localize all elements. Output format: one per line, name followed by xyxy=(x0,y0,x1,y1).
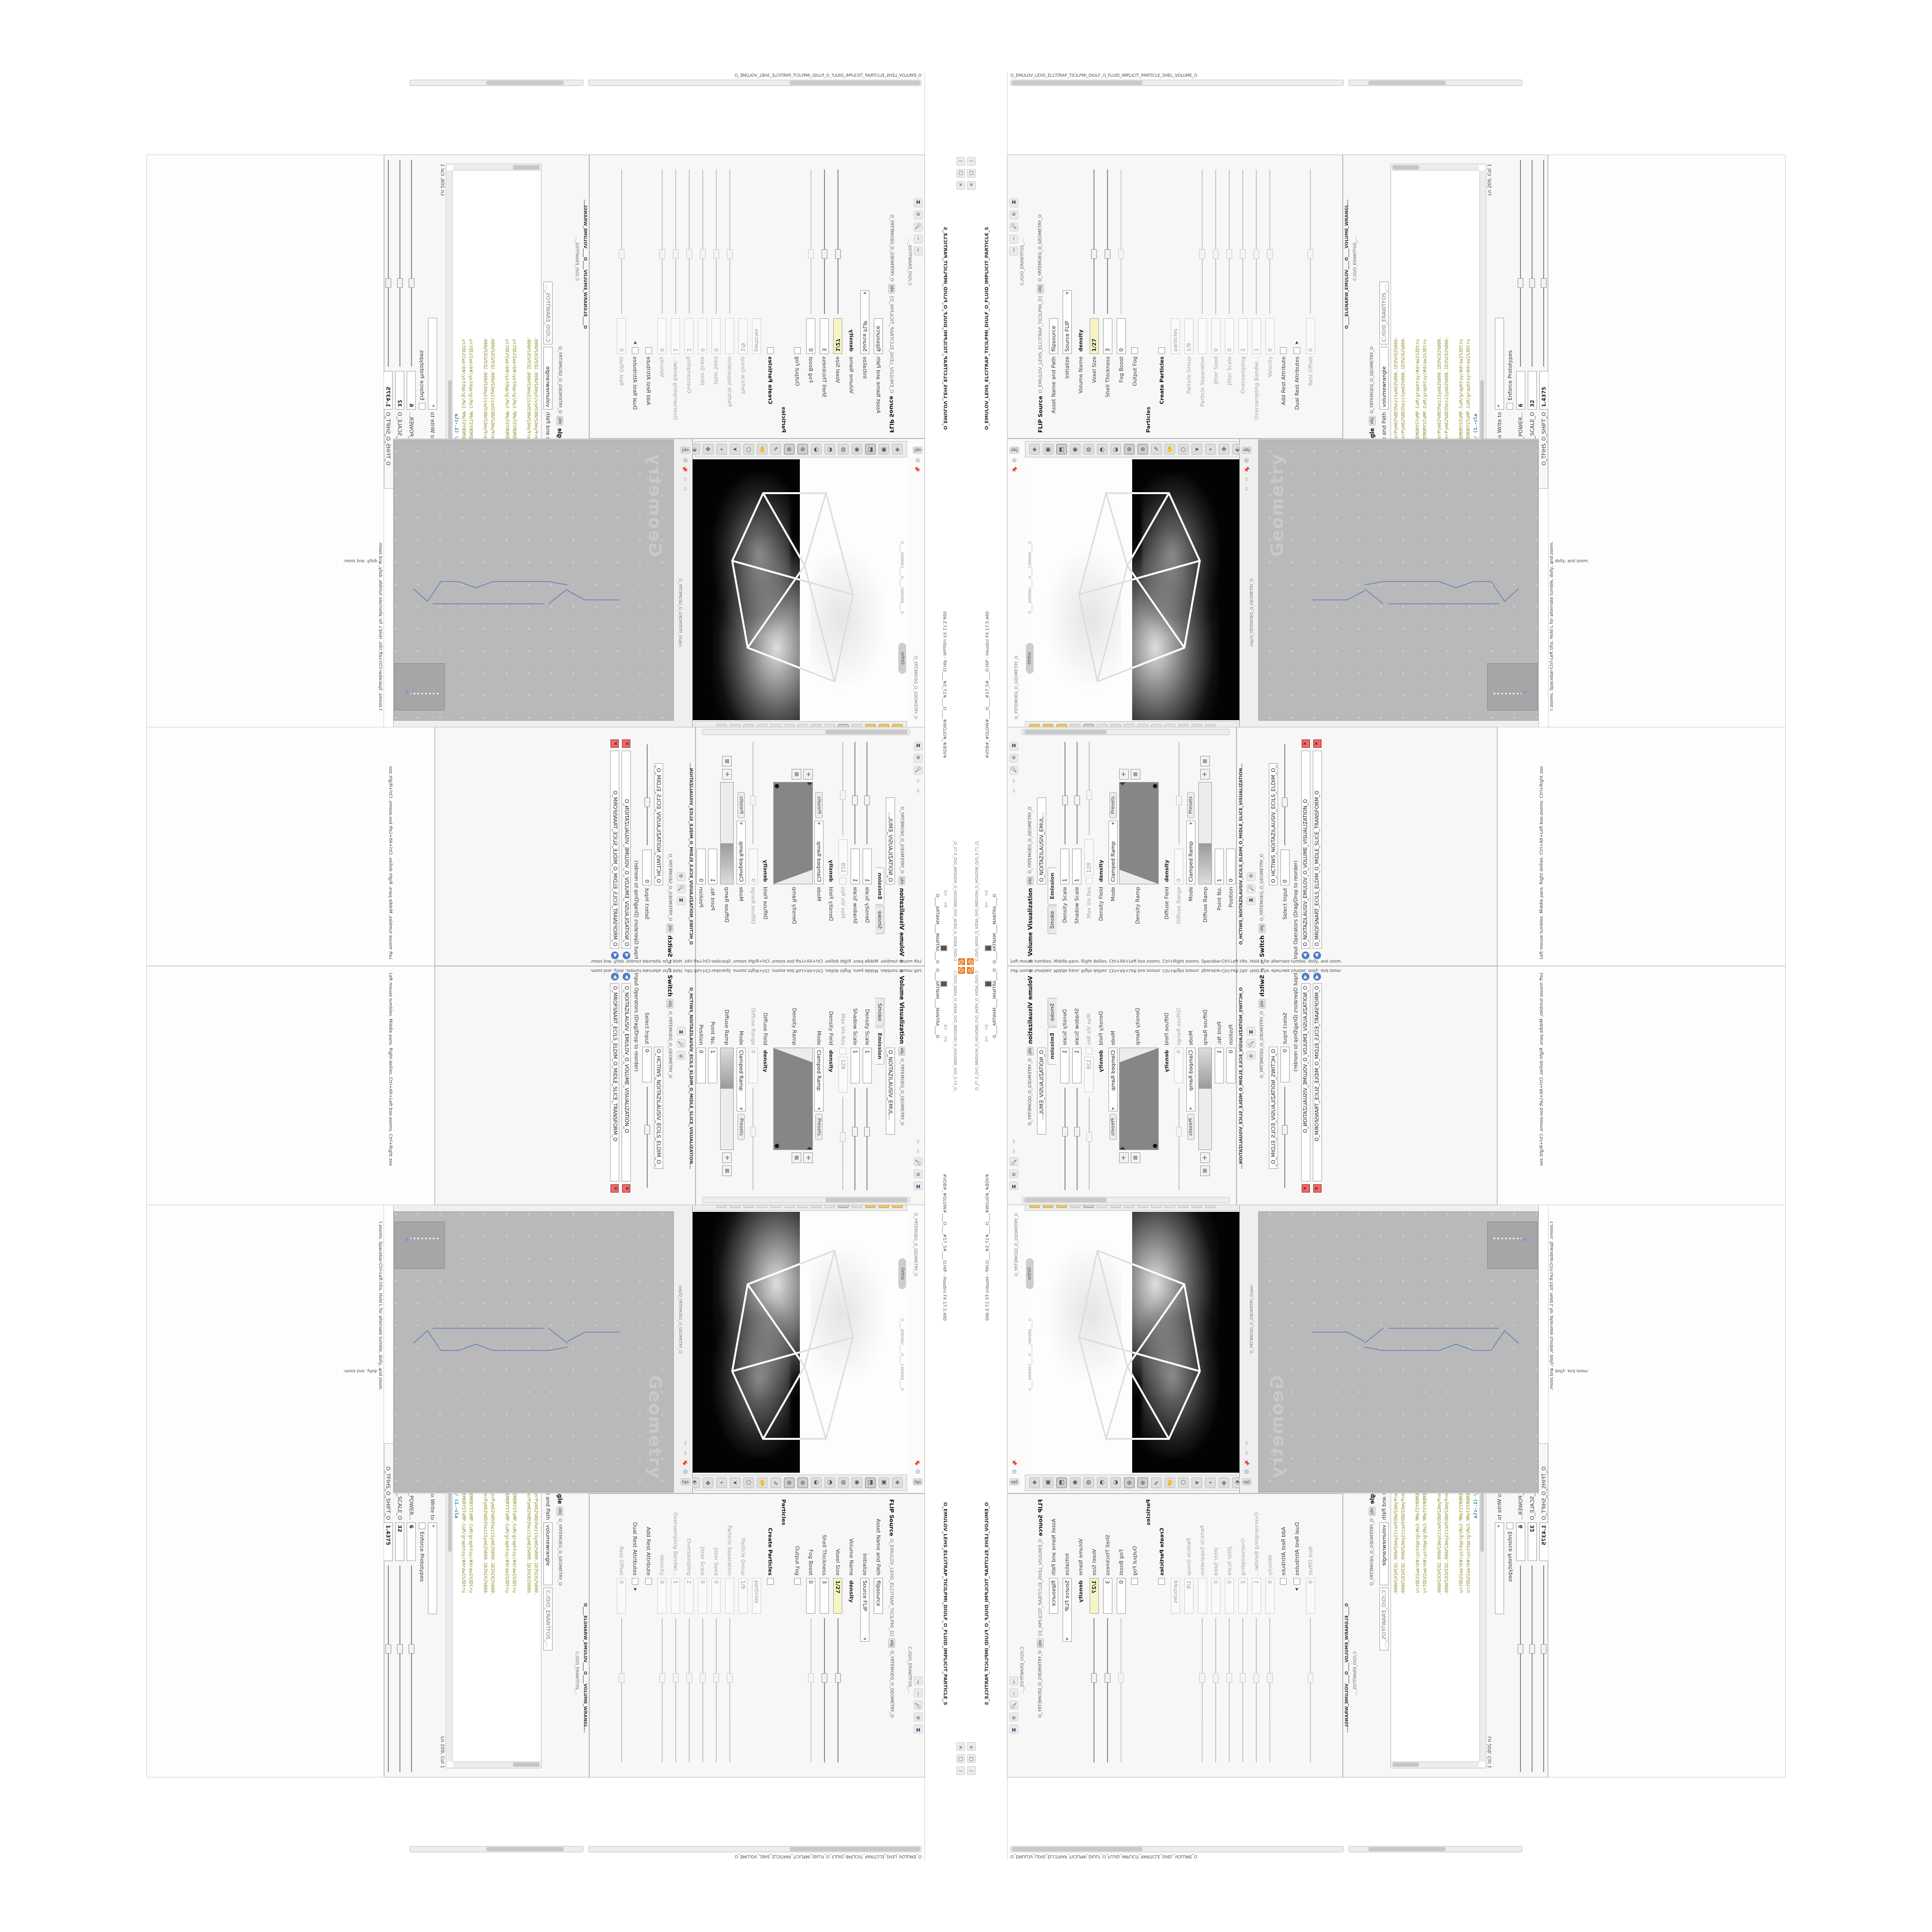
code-vscrollbar[interactable] xyxy=(453,1762,540,1767)
parameter-field[interactable]: 1 xyxy=(1252,1578,1261,1614)
parameter-row[interactable]: particles ➤ xyxy=(750,165,764,433)
parameter-slider[interactable] xyxy=(1065,1088,1065,1190)
nav-up-arrow-icon[interactable]: ⇧ xyxy=(1011,778,1016,784)
remove-operator-button[interactable]: ✕ xyxy=(611,739,619,748)
parameter-row[interactable]: O_ELACS_O_SCALE_O 32 xyxy=(394,1444,406,1777)
parameter-slider[interactable] xyxy=(1202,1618,1203,1762)
remove-operator-button[interactable]: ✕ xyxy=(1313,1184,1321,1193)
parameter-row[interactable]: Voxel Size 1/27 ➤ xyxy=(1087,1499,1101,1767)
viewport-tool-icon[interactable]: ✥ xyxy=(703,444,713,455)
checkbox[interactable] xyxy=(632,1578,639,1585)
parameter-row[interactable]: Jitter Scale 0 ➤ xyxy=(696,165,710,433)
obj-tab[interactable]: obj xyxy=(681,1478,690,1485)
code-hscrollbar[interactable] xyxy=(1479,170,1485,483)
input-operator-row[interactable]: ◀ O_NOITAZILAUSIV_EMULOV_O_VOLUME_VISUAL… xyxy=(1300,739,1311,959)
magnifier-icon[interactable]: 🔍 xyxy=(1009,223,1018,231)
obj-breadcrumb[interactable]: obj xyxy=(898,1047,905,1056)
wrangle-breadcrumb-path[interactable]: C:/O/O_ERAWTFOS_... xyxy=(574,170,579,281)
parameter-field[interactable]: 2 xyxy=(685,318,694,354)
density-ramp-editor[interactable] xyxy=(1119,782,1159,884)
flip-tab-title[interactable]: FLIP Source xyxy=(1037,1499,1044,1536)
operator-path[interactable]: O_NOITAZILAUSIV_EMULOV_O_VOLUME_VISUALIZ… xyxy=(1301,983,1310,1181)
reorder-icon[interactable]: ◀ xyxy=(1313,973,1321,980)
viewport-side-icons[interactable]: obj ◎ 📌 xyxy=(913,447,923,473)
checkbox[interactable] xyxy=(1131,347,1138,354)
checkbox[interactable] xyxy=(1158,1578,1165,1585)
obj-breadcrumb[interactable]: obj xyxy=(1027,1047,1034,1056)
parameter-slider[interactable] xyxy=(1532,1565,1533,1772)
parameter-slider[interactable] xyxy=(1179,1088,1179,1190)
viewport-tool-icon[interactable]: ⊗ xyxy=(784,444,795,455)
switch-side-icons[interactable]: ⚙ 🔍 H xyxy=(677,872,685,905)
geo-breadcrumb[interactable]: O_YRTEMOEG_O_GEOMETRY_O xyxy=(889,214,894,282)
parameter-field[interactable]: 1/27 xyxy=(834,318,843,354)
parameter-field[interactable]: Clamped Ramp xyxy=(1186,1048,1195,1111)
wrangle-breadcrumb-path[interactable]: C:/O/O_ERAWTFOS_... xyxy=(1353,1651,1358,1762)
magnifier-icon[interactable]: 🔍 xyxy=(914,223,923,231)
parameter-field[interactable]: Source FLIP xyxy=(1063,1578,1072,1642)
network-canvas[interactable]: Geometry an_CubeSphereO_EREHPS_EBUC_O_CU… xyxy=(1258,440,1538,721)
parameter-field[interactable]: 0 xyxy=(807,318,816,354)
volumes-field[interactable]: * xyxy=(1495,318,1504,410)
parameter-field[interactable]: Clamped Ramp xyxy=(814,1048,824,1111)
parameter-row[interactable]: Shell Thickness 3 ➤ xyxy=(818,1499,831,1767)
viewport-tool-icon[interactable]: ○ xyxy=(1178,1477,1189,1488)
flip-pane-icons[interactable]: H ⚙ 🔍 i ? xyxy=(1009,1676,1018,1733)
viewport-tool-icon[interactable]: ◑ xyxy=(1110,1477,1121,1488)
volviz-scrollbar[interactable] xyxy=(1022,1197,1230,1203)
parameter-slider[interactable] xyxy=(675,1618,676,1762)
nav-down-arrow-icon[interactable]: ⇩ xyxy=(683,486,688,492)
flip-pane-icons[interactable]: H ⚙ 🔍 i ? xyxy=(914,199,923,256)
asset-name-field[interactable]: volumewrangle xyxy=(544,347,553,410)
target-icon[interactable]: ◎ xyxy=(1244,1469,1249,1475)
parameter-field[interactable]: 0 xyxy=(1265,318,1275,354)
viewport-tool-icon[interactable]: ◧ xyxy=(865,444,876,455)
parameter-row[interactable]: Asset Name and Path flipsource ➤ xyxy=(872,165,885,433)
parameter-slider[interactable] xyxy=(1269,1618,1270,1762)
viewport-tool-icon[interactable]: ▣ xyxy=(1043,1477,1053,1488)
parameter-row[interactable]: Asset Name and Path flipsource ➤ xyxy=(1047,165,1060,433)
parameter-row[interactable]: O_TFIHS_O_SHIFT_O 1.4375 xyxy=(383,155,394,488)
parameter-field[interactable]: 0 xyxy=(658,1578,667,1614)
parameter-row[interactable]: Add Rest Attribute ➤ xyxy=(642,165,655,433)
parameter-field[interactable]: density xyxy=(1076,1578,1085,1614)
obj-breadcrumb[interactable]: obj xyxy=(556,416,563,426)
magnifier-icon[interactable]: 🔍 xyxy=(914,1157,923,1166)
volviz-side-icons[interactable]: H ⚙ 🔍 ⇧ ⇩ xyxy=(914,1138,923,1190)
viewport-render-area[interactable]: Ortho O____AREMAC____O____CAMERA____O xyxy=(693,459,907,720)
parameter-field[interactable]: 0 xyxy=(1306,318,1315,354)
parameter-field[interactable]: density xyxy=(826,1048,836,1083)
viewport-tool-icon[interactable]: ◐ xyxy=(1097,444,1108,455)
parameter-slider[interactable] xyxy=(1179,742,1179,844)
parameter-slider[interactable] xyxy=(689,1618,690,1762)
parameter-slider[interactable] xyxy=(1520,160,1521,367)
parameter-field[interactable]: 0 xyxy=(617,1578,626,1614)
parameter-slider[interactable] xyxy=(1269,170,1270,314)
camera-menu-label[interactable]: O____AREMAC____O____CAMERA____O xyxy=(1028,488,1033,614)
nav-down-arrow-icon[interactable]: ⇩ xyxy=(1244,1440,1249,1446)
vex-code-editor[interactable]: //// ◎ 0D3%steserPym62%0D3%eziSym62%000.… xyxy=(1391,164,1486,483)
parameter-row[interactable]: Volume Name density ➤ xyxy=(845,165,858,433)
parameter-row[interactable]: Density Scale 1 Presets xyxy=(1059,737,1071,963)
window-close-button[interactable]: ✕ xyxy=(967,181,976,190)
parameter-row[interactable]: Shell Thickness 3 ➤ xyxy=(1101,1499,1114,1767)
parameter-field[interactable] xyxy=(1198,1578,1207,1614)
parameter-row[interactable]: Oversampling Bandwi... 1 ➤ xyxy=(669,165,682,433)
flip-pane-tab-row[interactable]: FLIP Source O_EMULOV_LEHS_ELCITRAP_TICIL… xyxy=(1034,165,1047,433)
volviz-scrollbar[interactable] xyxy=(702,729,910,735)
parameter-field[interactable]: 1 xyxy=(671,318,681,354)
camera-menu-label[interactable]: O____AREMAC____O____CAMERA____O xyxy=(899,488,904,614)
parameter-slider[interactable] xyxy=(689,170,690,314)
parameter-row[interactable]: Point No. 1 xyxy=(707,969,719,1195)
checkbox[interactable] xyxy=(840,1048,847,1054)
viewport-tool-icon[interactable]: ▣ xyxy=(879,444,889,455)
remove-operator-button[interactable]: ✕ xyxy=(611,1184,619,1193)
parameter-row[interactable]: Point No. 1 xyxy=(1213,737,1225,963)
parameter-field[interactable]: 3 xyxy=(1103,318,1112,354)
switch-node-field[interactable]: O_HCTIWS_NOITAZILAUSIV_ECILS_ELDIM_O_ xyxy=(654,1047,664,1169)
operator-path[interactable]: O_MROFSNART_ECILS_ELDIM_O_MIDLE_SLICE_TR… xyxy=(611,751,620,949)
pin-icon[interactable]: 📌 xyxy=(914,467,921,473)
parameter-row[interactable]: Density Field density Presets xyxy=(825,737,837,963)
window-maximize-button[interactable]: □ xyxy=(956,169,965,178)
parameter-slider[interactable] xyxy=(1121,170,1122,314)
parameter-slider[interactable] xyxy=(855,742,856,844)
obj-breadcrumb[interactable]: obj xyxy=(1369,416,1376,426)
reorder-icon[interactable]: ◀ xyxy=(623,952,630,959)
parameter-slider[interactable] xyxy=(1077,742,1078,844)
geo-breadcrumb[interactable]: O_YRTEMOEG_O_GEOMETRY_O xyxy=(1260,1011,1264,1078)
parameter-row[interactable]: O_TFIHS_O_SHIFT_O 1.4375 xyxy=(383,1444,394,1777)
viewport-tool-icon[interactable]: ◐ xyxy=(1097,1477,1108,1488)
parameter-field[interactable]: density xyxy=(1076,318,1085,354)
parameter-slider[interactable] xyxy=(753,1088,754,1190)
parameter-row[interactable]: Initialize Source FLIP ➤ xyxy=(1060,165,1074,433)
parameter-slider[interactable] xyxy=(855,1088,856,1190)
ramp-add-button[interactable]: ✛ xyxy=(1200,1152,1210,1163)
parameter-slider[interactable] xyxy=(388,160,389,367)
parameter-row[interactable]: Fog Boost 0 ➤ xyxy=(1114,165,1128,433)
parameter-field[interactable]: 1 xyxy=(1072,1048,1081,1083)
gear-icon[interactable]: ⚙ xyxy=(1009,1169,1018,1178)
parameter-field[interactable]: 0 xyxy=(712,1578,721,1614)
magnifier-icon[interactable]: 🔍 xyxy=(1009,1701,1018,1709)
parameter-row[interactable]: Velocity 0 ➤ xyxy=(655,165,669,433)
parameter-row[interactable]: Fog Boost 0 ➤ xyxy=(804,165,818,433)
nav-up-arrow-icon[interactable]: ⇧ xyxy=(1244,1449,1249,1456)
parameter-field[interactable]: Clamped Ramp xyxy=(814,821,824,884)
switch-title-row[interactable]: ⇄ Switch obj O_YRTEMOEG_O_GEOMETRY_O xyxy=(1256,739,1268,964)
obj-breadcrumb[interactable]: obj xyxy=(888,1638,895,1648)
geo-breadcrumb[interactable]: O_YRTEMOEG_O_GEOMETRY_O xyxy=(1370,1519,1375,1586)
parameter-field[interactable]: 0 xyxy=(1117,1578,1126,1614)
nav-down-arrow-icon[interactable]: ⇩ xyxy=(983,1023,990,1031)
code-vscrollbar[interactable] xyxy=(1392,1762,1479,1767)
nav-up-arrow-icon[interactable]: ⇧ xyxy=(683,476,688,483)
input-operator-row[interactable]: ◀ O_NOITAZILAUSIV_EMULOV_O_VOLUME_VISUAL… xyxy=(1300,973,1311,1193)
window-maximize-button[interactable]: □ xyxy=(967,169,976,178)
code-vscrollbar[interactable] xyxy=(453,165,540,170)
viewport-tool-icon[interactable]: ◈ xyxy=(892,1477,903,1488)
scrollbar-top-left[interactable] xyxy=(588,1846,922,1852)
parameter-row[interactable]: Max Vis Res 128 Presets xyxy=(1083,969,1095,1195)
viewport-tool-icon[interactable]: ▣ xyxy=(1043,444,1053,455)
checkbox[interactable] xyxy=(767,347,774,354)
viewport-tool-icon[interactable]: ⌖ xyxy=(716,444,727,455)
wrangle-pane-tab-label[interactable]: O____ELGNARW_EMULOV____O____VOLUME_WRANG… xyxy=(582,1603,587,1762)
parameter-row[interactable]: Particle Separation ➤ xyxy=(1195,1499,1209,1767)
info-icon[interactable]: i xyxy=(914,1689,923,1697)
parameter-slider[interactable] xyxy=(716,170,717,314)
parameter-field[interactable]: particles xyxy=(753,1578,762,1614)
parameter-row[interactable]: Rest Offset 0 ➤ xyxy=(1304,1499,1317,1767)
select-input-field[interactable]: 0 xyxy=(643,1047,652,1082)
enforce-row[interactable]: Enforce Prototypes xyxy=(1505,1444,1515,1777)
parameter-slider[interactable] xyxy=(662,1618,663,1762)
parameter-row[interactable]: Rest Offset 0 ➤ xyxy=(1304,165,1317,433)
parameter-slider[interactable] xyxy=(1543,1565,1544,1772)
volviz-node-field[interactable]: O_NOITAZILAUSIV_EMUL... xyxy=(886,797,895,884)
pin-icon[interactable]: 📌 xyxy=(914,1459,921,1465)
obj-breadcrumb[interactable]: obj xyxy=(556,1506,563,1516)
diffuse-ramp-editor[interactable] xyxy=(720,1048,734,1150)
obj-tab[interactable]: obj xyxy=(1242,1478,1251,1485)
parameter-row[interactable]: Voxel Size 1/27 ➤ xyxy=(831,165,845,433)
target-icon[interactable]: ◎ xyxy=(915,1469,920,1475)
viewport-side-icons[interactable]: obj ◎ 📌 xyxy=(913,1459,923,1485)
parameter-row[interactable]: Diffuse Field density Presets xyxy=(759,737,771,963)
viewport-tool-icon[interactable]: ◧ xyxy=(1056,444,1067,455)
magnifier-icon[interactable]: 🔍 xyxy=(1247,884,1255,893)
parameter-field[interactable]: 0 xyxy=(1226,849,1236,884)
network-side-icons[interactable]: obj ◎ 📌 ⇧ ⇩ xyxy=(1242,1440,1251,1485)
parameter-row[interactable]: Rest Offset 0 ➤ xyxy=(615,165,628,433)
parameter-slider[interactable] xyxy=(1532,160,1533,367)
parameter-row[interactable]: Position 0 xyxy=(696,737,707,963)
volviz-title-row[interactable]: ❧ Volume Visualization obj O_YRTEMOEG_O_… xyxy=(896,969,908,1195)
parameter-field[interactable]: 0 xyxy=(697,849,706,884)
code-hscrollbar[interactable] xyxy=(447,1449,453,1762)
volviz-title[interactable]: Volume Visualization xyxy=(1027,888,1034,956)
parameter-field[interactable]: 0 xyxy=(1117,318,1126,354)
input-operator-row[interactable]: ◀ O_NOITAZILAUSIV_EMULOV_O_VOLUME_VISUAL… xyxy=(621,739,632,959)
info-icon[interactable]: i xyxy=(914,235,923,243)
parameter-field[interactable]: 3 xyxy=(820,318,829,354)
parameter-row[interactable]: Mode Clamped Ramp Presets xyxy=(1107,969,1119,1195)
volviz-node-field[interactable]: O_NOITAZILAUSIV_EMUL... xyxy=(1037,797,1046,884)
viewport-tool-icon[interactable]: ▣ xyxy=(879,1477,889,1488)
vex-code-editor[interactable]: //// ◎ 0D3%steserPym62%0D3%eziSym62%000.… xyxy=(446,164,541,483)
parameter-row[interactable]: Rest Offset 0 ➤ xyxy=(615,1499,628,1767)
geo-breadcrumb[interactable]: O_YRTEMOEG_O_GEOMETRY_O xyxy=(899,807,904,874)
parameter-field[interactable]: 1.4375 xyxy=(1539,1522,1548,1561)
ramp-handle[interactable] xyxy=(1153,1144,1157,1148)
nav-down-arrow-icon[interactable]: ⇩ xyxy=(983,901,990,909)
parameter-row[interactable]: Output Fog ➤ xyxy=(1128,1499,1141,1767)
obj-tab[interactable]: obj xyxy=(1009,1478,1019,1485)
reorder-icon[interactable]: ◀ xyxy=(1313,952,1321,959)
parameter-slider[interactable] xyxy=(1107,1618,1108,1762)
nav-up-arrow-icon[interactable]: ⇧ xyxy=(683,1449,688,1456)
pin-icon[interactable]: 📌 xyxy=(1011,467,1018,473)
parameter-row[interactable]: Create Particles ➤ xyxy=(1155,1499,1168,1767)
window-minimize-button[interactable]: — xyxy=(956,157,965,166)
parameter-field[interactable]: particles xyxy=(1171,1578,1180,1614)
ramp-add-button[interactable]: ✛ xyxy=(722,1152,732,1163)
geo-breadcrumb[interactable]: O_YRTEMOEG_O_GEOMETRY_O xyxy=(557,346,562,413)
parameter-row[interactable]: Particles ➤ xyxy=(1141,165,1155,433)
parameter-row[interactable]: Oversampling 2 ➤ xyxy=(682,1499,696,1767)
target-icon[interactable]: ◎ xyxy=(915,457,920,463)
nav-up-arrow-icon[interactable]: ⇧ xyxy=(942,889,949,897)
parameter-row[interactable]: Mode Clamped Ramp Presets xyxy=(813,969,825,1195)
window-buttons[interactable]: — □ ✕ xyxy=(967,1742,976,1775)
parameter-row[interactable]: Create Particles ➤ xyxy=(764,165,777,433)
parameter-row[interactable]: Jitter Seed 0 ➤ xyxy=(1209,165,1222,433)
network-canvas[interactable]: Geometry an_CubeSphereO_EREHPS_EBUC_O_CU… xyxy=(394,440,674,721)
viewport-tool-icon[interactable]: ○ xyxy=(743,444,754,455)
tab-emission[interactable]: Emission xyxy=(1048,1027,1057,1065)
network-side-icons[interactable]: obj ◎ 📌 ⇧ ⇩ xyxy=(681,447,690,492)
target-icon[interactable]: ◎ xyxy=(683,457,688,463)
reorder-icon[interactable]: ◀ xyxy=(1302,973,1309,980)
select-input-row[interactable]: Select Input 0 xyxy=(641,739,653,964)
nav-up-arrow-icon[interactable]: ⇧ xyxy=(916,1148,920,1154)
nav-down-arrow-icon[interactable]: ⇩ xyxy=(1011,788,1016,794)
checkbox[interactable] xyxy=(767,1578,774,1585)
parameter-field[interactable]: 32 xyxy=(1528,371,1537,410)
parameter-field[interactable]: 1 xyxy=(851,1048,860,1083)
viewport-tool-icon[interactable]: ✎ xyxy=(770,1477,781,1488)
gear-icon[interactable]: ⚙ xyxy=(1009,1713,1018,1721)
magnifier-icon[interactable]: 🔍 xyxy=(677,884,685,893)
ramp-delete-button[interactable]: ⊠ xyxy=(1200,1165,1210,1176)
viewport-tool-icon[interactable]: ⊕ xyxy=(797,1477,808,1488)
checkbox[interactable] xyxy=(794,1578,801,1585)
parameter-row[interactable]: Density Scale 1 Presets xyxy=(1059,969,1071,1195)
parameter-slider[interactable] xyxy=(1242,1618,1243,1762)
parameter-field[interactable]: 1 xyxy=(1215,1048,1224,1083)
window-minimize-button[interactable]: — xyxy=(967,157,976,166)
nav-down-arrow-icon[interactable]: ⇩ xyxy=(683,1440,688,1446)
parameter-row[interactable]: Velocity 0 ➤ xyxy=(655,1499,669,1767)
parameter-row[interactable]: Density Field density Presets xyxy=(1095,737,1107,963)
parameter-field[interactable]: density xyxy=(826,849,836,884)
viewport-render-area[interactable]: Ortho O____AREMAC____O____CAMERA____O xyxy=(1025,1212,1239,1473)
parameter-row[interactable]: Shell Thickness 3 ➤ xyxy=(818,165,831,433)
asset-name-field[interactable]: volumewrangle xyxy=(544,1522,553,1585)
operator-path[interactable]: O_NOITAZILAUSIV_EMULOV_O_VOLUME_VISUALIZ… xyxy=(622,751,631,949)
parameter-field[interactable]: 0 xyxy=(807,1578,816,1614)
checkbox[interactable] xyxy=(1086,1048,1093,1054)
operator-path[interactable]: O_MROFSNART_ECILS_ELDIM_O_MIDLE_SLICE_TR… xyxy=(1313,983,1322,1181)
gear-icon[interactable]: ⚙ xyxy=(1009,211,1018,219)
parameter-field[interactable]: 0 xyxy=(749,1048,758,1083)
select-input-slider[interactable] xyxy=(1284,1087,1285,1188)
parameter-field[interactable]: density xyxy=(847,1578,856,1614)
houdini-op-spiral-icon[interactable] xyxy=(958,967,965,974)
gear-icon[interactable]: ⚙ xyxy=(677,872,685,881)
switch-node-field[interactable]: O_HCTIWS_NOITAZILAUSIV_ECILS_ELDIM_O_ xyxy=(654,763,664,885)
parameter-row[interactable]: Asset Name and Path flipsource ➤ xyxy=(872,1499,885,1767)
volviz-title-row[interactable]: ❧ Volume Visualization obj O_YRTEMOEG_O_… xyxy=(1024,969,1036,1195)
parameter-row[interactable]: Shell Thickness 3 ➤ xyxy=(1101,165,1114,433)
network-side-icons[interactable]: obj ◎ 📌 ⇧ ⇩ xyxy=(1242,447,1251,492)
param-nav-arrows[interactable]: ⇧ ⇩ xyxy=(983,1023,990,1043)
parameter-field[interactable]: 1 xyxy=(1060,849,1069,884)
parameter-field[interactable]: Source FLIP xyxy=(1063,290,1072,354)
parameter-field[interactable]: 1 xyxy=(1072,849,1081,884)
parameter-row[interactable]: Density Scale 1 Presets xyxy=(861,737,873,963)
parameter-slider[interactable] xyxy=(1202,170,1203,314)
viewport-tool-icon[interactable]: ◑ xyxy=(1110,444,1121,455)
select-input-row[interactable]: Select Input 0 xyxy=(641,968,653,1193)
parameter-slider[interactable] xyxy=(1229,1618,1230,1762)
input-operator-row[interactable]: ◀ O_MROFSNART_ECILS_ELDIM_O_MIDLE_SLICE_… xyxy=(1311,973,1323,1193)
nav-up-arrow-icon[interactable]: ⇧ xyxy=(983,889,990,897)
volumes-field[interactable]: * xyxy=(428,318,438,410)
wrangle-tab-row[interactable]: ✎ Volume Wrangle obj O_YRTEMOEG_O_GEOMET… xyxy=(1366,1444,1378,1777)
parameter-field[interactable]: 128 xyxy=(838,839,848,875)
checkbox[interactable] xyxy=(645,347,652,354)
viewport-tool-icon[interactable]: ◉ xyxy=(1070,1477,1080,1488)
geo-breadcrumb[interactable]: O_YRTEMOEG_O_GEOMETRY_O xyxy=(899,1058,904,1125)
wrangle-pane-tab-label[interactable]: O____ELGNARW_EMULOV____O____VOLUME_WRANG… xyxy=(1345,170,1350,329)
input-operator-row[interactable]: ◀ O_MROFSNART_ECILS_ELDIM_O_MIDLE_SLICE_… xyxy=(609,973,621,1193)
parameter-slider[interactable] xyxy=(1229,170,1230,314)
parameter-slider[interactable] xyxy=(662,170,663,314)
parameter-field[interactable]: 1/9 xyxy=(739,318,748,354)
parameter-row[interactable]: Volume Name density ➤ xyxy=(1074,165,1087,433)
parameter-slider[interactable] xyxy=(867,1088,868,1190)
parameter-slider[interactable] xyxy=(1089,742,1090,835)
parameter-field[interactable]: 0 xyxy=(749,849,758,884)
operator-path[interactable]: O_NOITAZILAUSIV_EMULOV_O_VOLUME_VISUALIZ… xyxy=(1301,751,1310,949)
parameter-row[interactable]: Voxel Size 1/27 ➤ xyxy=(1087,165,1101,433)
param-nav-arrows[interactable]: ⇧ ⇩ xyxy=(983,889,990,909)
parameter-row[interactable]: Oversampling 2 ➤ xyxy=(1236,165,1250,433)
viewport-tool-icon[interactable]: ◐ xyxy=(824,444,835,455)
parameter-slider[interactable] xyxy=(1543,160,1544,367)
parameter-slider[interactable] xyxy=(399,1565,400,1772)
window-buttons[interactable]: — □ ✕ xyxy=(956,1742,965,1775)
obj-breadcrumb[interactable]: obj xyxy=(898,876,905,886)
enforce-checkbox[interactable] xyxy=(1506,1522,1513,1529)
target-icon[interactable]: ◎ xyxy=(1244,457,1249,463)
parameter-slider[interactable] xyxy=(810,1618,811,1762)
parameter-slider[interactable] xyxy=(838,170,838,314)
parameter-field[interactable]: 3 xyxy=(820,1578,829,1614)
network-minimap[interactable] xyxy=(1487,1222,1537,1269)
ramp-add-button[interactable]: ✛ xyxy=(722,769,732,780)
nav-down-arrow-icon[interactable]: ⇩ xyxy=(942,1023,949,1031)
switch-side-icons[interactable]: ⚙ 🔍 H xyxy=(1247,872,1255,905)
magnifier-icon[interactable]: 🔍 xyxy=(1009,1157,1018,1166)
parameter-slider[interactable] xyxy=(621,170,622,314)
ramp-add-button[interactable]: ✛ xyxy=(803,769,813,780)
parameter-row[interactable]: Max Vis Res 128 Presets xyxy=(837,737,849,963)
pin-icon[interactable]: 📌 xyxy=(682,1459,689,1465)
viewport-side-icons[interactable]: obj ◎ 📌 xyxy=(1009,1459,1019,1485)
obj-breadcrumb[interactable]: obj xyxy=(888,284,895,294)
parameter-field[interactable]: 3 xyxy=(1103,1578,1112,1614)
nav-up-arrow-icon[interactable]: ⇧ xyxy=(942,1035,949,1043)
help-icon[interactable]: ? xyxy=(914,1676,923,1685)
geo-breadcrumb[interactable]: O_YRTEMOEG_O_GEOMETRY_O xyxy=(557,1519,562,1586)
